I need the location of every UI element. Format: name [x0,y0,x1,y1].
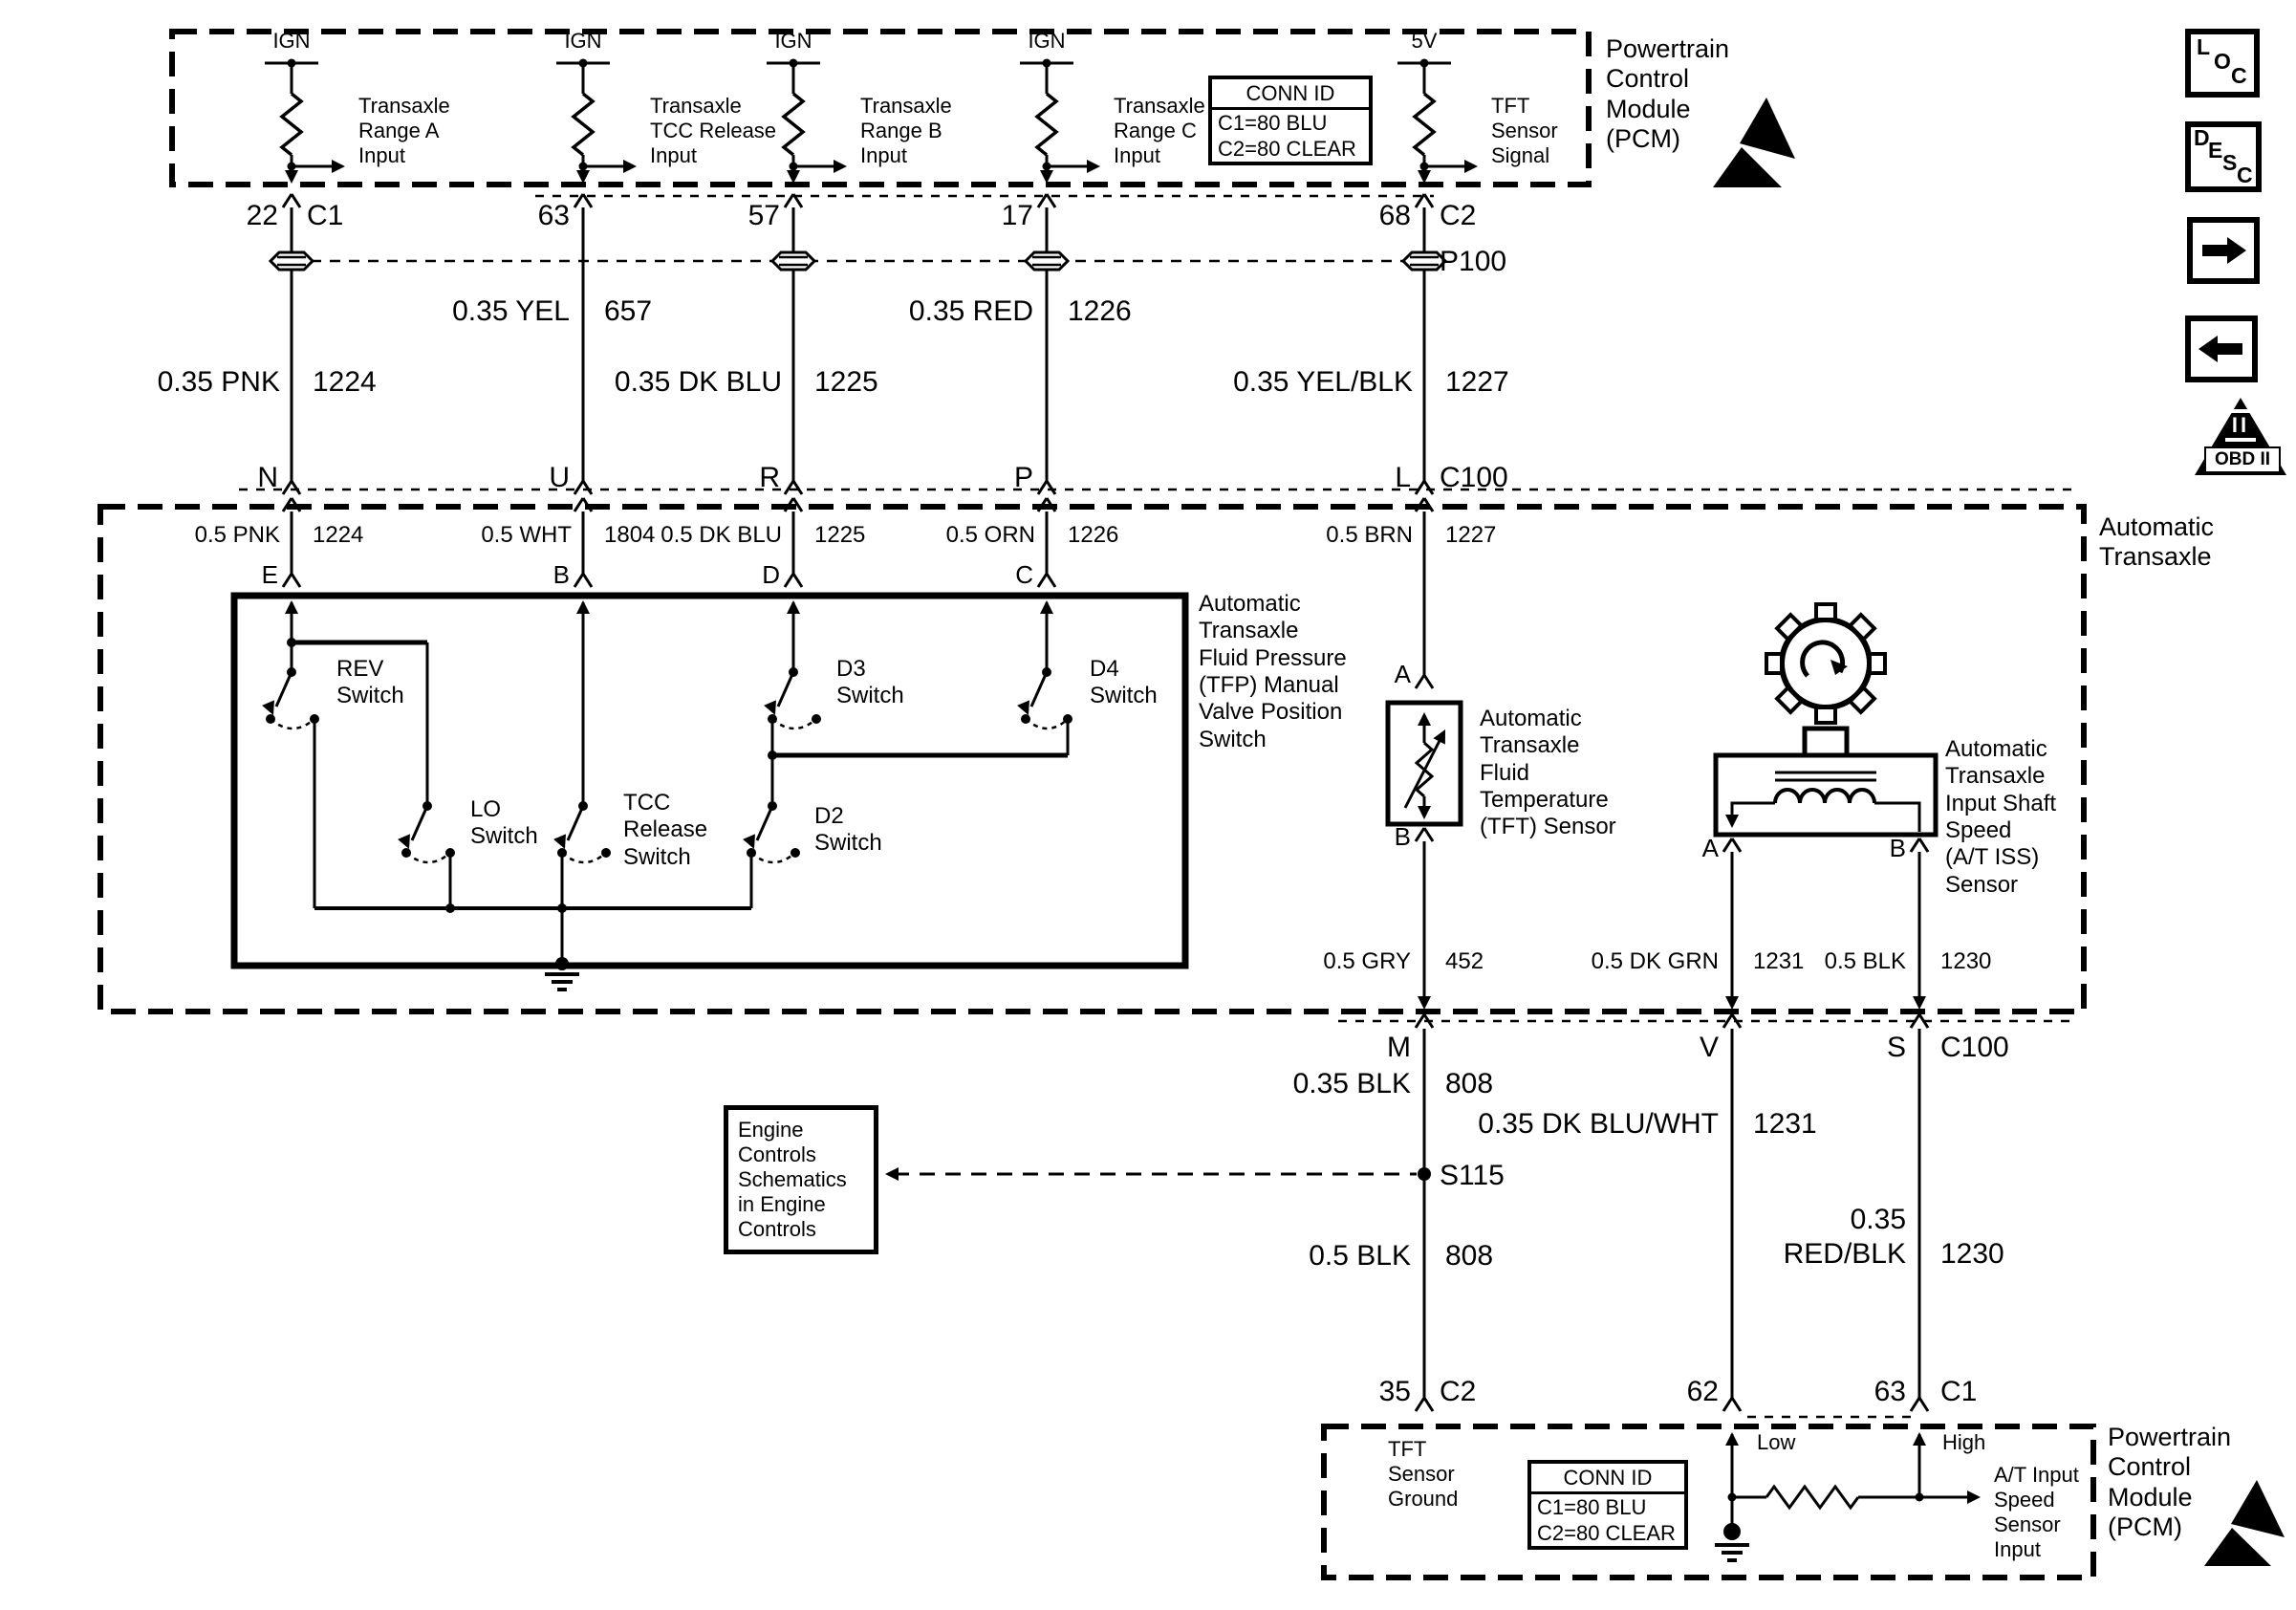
wiring-diagram: IGN IGN IGN IGN 5V Transaxle Range A Inp… [0,0,2296,1610]
tfp-label: Automatic Transaxle Fluid Pressure (TFP)… [1199,591,1347,753]
supply-label-2: IGN [545,29,621,54]
resistor-symbol-tft-signal [1397,63,1468,180]
pin-35-conn: C2 [1440,1375,1476,1409]
tx-wire-color-brn: 0.5 BRN [1241,522,1413,549]
d2-switch-symbol [751,806,795,908]
resistor-symbol-range-a [265,63,336,180]
iss-pin-a: A [1661,834,1719,863]
tfp-ground-symbol [545,957,579,990]
wire-ckt-1231b: 1231 [1753,1107,1817,1142]
wire-ckt-1226: 1226 [1068,294,1132,329]
pin-17: 17 [947,199,1033,233]
resistor-symbol-speed [1766,1487,1858,1508]
d2-switch-label: D2 Switch [814,803,882,858]
transaxle-box [100,507,2084,1012]
circuit-desc-3: Transaxle Range B Input [860,94,952,168]
c100-bottom-name: C100 [1940,1031,2009,1065]
wire-color-red: 0.35 RED [823,294,1033,329]
resistor-symbol-range-b [767,63,837,180]
low-label: Low [1757,1430,1795,1455]
wire-color-redblk: 0.35 RED/BLK [1696,1203,1906,1272]
pin-22-conn: C1 [307,199,343,233]
supply-label-3: IGN [755,29,832,54]
tx-wire-ckt-1224: 1224 [313,522,363,549]
tx-wire-color-dkblu: 0.5 DK BLU [600,522,782,549]
c100-pin-p: P [976,461,1033,495]
circuit-desc-5: TFT Sensor Signal [1491,94,1558,168]
pin-63b: 63 [1820,1375,1906,1409]
iss-sensor-symbol [1716,729,1936,835]
splice-s115-label: S115 [1440,1159,1505,1193]
d4-switch-symbol [1026,672,1068,755]
speed-sensor-input-label: A/T Input Speed Sensor Input [1994,1463,2079,1562]
loc-letter-c: C [2231,63,2247,89]
wire-color-yelblk: 0.35 YEL/BLK [1164,365,1413,400]
tx-wire-ckt-1225: 1225 [814,522,865,549]
tx-wire-color-orn: 0.5 ORN [863,522,1035,549]
prev-page-button[interactable] [2185,315,2258,382]
d3-switch-label: D3 Switch [836,656,904,710]
p100-label: P100 [1440,245,1506,279]
tx-wire-color-pnk: 0.5 PNK [108,522,280,549]
wire-ckt-452: 452 [1445,948,1484,975]
c100-pin-v: V [1661,1031,1719,1065]
tfp-pin-d: D [723,560,780,590]
wire-color-blk: 0.5 BLK [1753,948,1906,975]
engine-controls-ref-text: Engine Controls Schematics in Engine Con… [738,1118,864,1242]
d4-switch-label: D4 Switch [1090,656,1158,710]
loc-button[interactable]: L O C [2185,29,2260,98]
c100-pin-u: U [512,461,570,495]
tcc-switch-label: TCC Release Switch [623,790,707,871]
iss-lead-arrow [1725,815,1739,828]
wire-ckt-808b: 808 [1445,1239,1493,1273]
lo-switch-label: LO Switch [470,796,538,851]
resistor-symbol-range-c [1020,63,1091,180]
transaxle-title: Automatic Transaxle [2099,512,2214,573]
lo-switch-symbol [406,806,450,908]
loc-letter-o: O [2214,49,2231,75]
desc-letter-s: S [2222,150,2237,176]
circuit-desc-2: Transaxle TCC Release Input [650,94,776,168]
pin-22: 22 [192,199,278,233]
pcm-bottom-ground-symbol [1715,1523,1749,1560]
high-label: High [1942,1430,1985,1455]
tfp-pin-b: B [512,560,570,590]
tfp-pin-e: E [221,560,278,590]
tft-sensor-label: Automatic Transaxle Fluid Temperature (T… [1480,706,1616,841]
c100-pin-m: M [1354,1031,1411,1065]
wire-color-dkgrn: 0.5 DK GRN [1527,948,1719,975]
pin-63: 63 [484,199,570,233]
tft-pin-b-glyph [1416,828,1433,841]
pin-63-conn: C1 [1940,1375,1977,1409]
engine-controls-ref-box: Engine Controls Schematics in Engine Con… [724,1105,878,1254]
c100-pin-n: N [221,461,278,495]
tfp-pin-c: C [976,560,1033,590]
wire-color-dkbluwht: 0.35 DK BLU/WHT [1413,1107,1719,1142]
desc-button[interactable]: D E S C [2185,121,2262,192]
resistor-symbol-tcc-release [556,63,627,180]
tft-sensor-arrows [1418,712,1451,819]
conn-id-box-top: CONN ID C1=80 BLU C2=80 CLEAR [1208,76,1373,165]
c100-pin-l: L [1354,461,1411,495]
iss-pin-b: B [1849,834,1906,863]
iss-sensor-label: Automatic Transaxle Input Shaft Speed (A… [1945,736,2056,899]
c100-pin-r: R [723,461,780,495]
pin-62: 62 [1633,1375,1719,1409]
d3-switch-symbol [772,672,816,806]
pin-35: 35 [1325,1375,1411,1409]
conn-id-top-title: CONN ID [1212,79,1369,110]
wire-ckt-1224: 1224 [313,365,377,400]
wire-ckt-1225: 1225 [814,365,878,400]
pcm-bottom-title: Powertrain Control Module (PCM) [2108,1423,2231,1542]
tx-wire-ckt-1226: 1226 [1068,522,1118,549]
pin-68-conn: C2 [1440,199,1476,233]
desc-letter-e: E [2208,138,2222,163]
wire-ckt-1230: 1230 [1940,948,1991,975]
wire-color-dkblu: 0.35 DK BLU [552,365,782,400]
rev-switch-label: REV Switch [336,656,404,710]
tft-pin-a: A [1354,660,1411,689]
supply-label-4: IGN [1008,29,1085,54]
pin-57: 57 [694,199,780,233]
c100-bottom-arrows [1418,996,1926,1010]
wire-color-yel: 0.35 YEL [359,294,570,329]
splice-s115 [885,1167,1431,1181]
gear-icon [1766,604,1885,723]
loc-letter-l: L [2197,34,2210,60]
wire-ckt-1227: 1227 [1445,365,1509,400]
wire-ckt-657: 657 [604,294,652,329]
wire-ckt-808a: 808 [1445,1067,1493,1101]
tx-wire-color-wht: 0.5 WHT [400,522,572,549]
conn-id-top-line1: C1=80 BLU [1212,110,1369,136]
desc-letter-c: C [2237,163,2253,188]
supply-label-5: 5V [1386,29,1462,54]
wire-color-gry: 0.5 GRY [1239,948,1411,975]
c100-pin-s: S [1849,1031,1906,1065]
obd2-label: OBD II [2204,446,2281,473]
circuit-desc-4: Transaxle Range C Input [1114,94,1205,168]
conn-id-bottom-line2: C2=80 CLEAR [1531,1520,1684,1546]
wire-color-blk-035: 0.35 BLK [1201,1067,1411,1101]
tx-wire-ckt-1227: 1227 [1445,522,1496,549]
wire-ckt-1230b: 1230 [1940,1237,2004,1272]
conn-id-bottom-line1: C1=80 BLU [1531,1494,1684,1520]
tft-pin-b: B [1354,822,1411,852]
arrow-left-icon [2191,321,2252,377]
conn-id-top-line2: C2=80 CLEAR [1212,136,1369,162]
wire-color-pnk: 0.35 PNK [70,365,280,400]
circuit-desc-1: Transaxle Range A Input [358,94,450,168]
pin-68: 68 [1325,199,1411,233]
c100-top-name: C100 [1440,461,1508,495]
iss-output-wires [1732,852,1919,1004]
obd2-numerals: II [2225,409,2256,442]
arrow-right-icon [2193,223,2254,278]
conn-id-box-bottom: CONN ID C1=80 BLU C2=80 CLEAR [1527,1460,1688,1550]
wire-color-blk-05: 0.5 BLK [1201,1239,1411,1273]
upper-harness-wires [292,207,1424,482]
next-page-button[interactable] [2187,217,2260,284]
supply-label-1: IGN [253,29,330,54]
tft-sensor-ground-label: TFT Sensor Ground [1388,1437,1458,1512]
rev-switch-symbol [271,672,314,908]
conn-id-bottom-title: CONN ID [1531,1464,1684,1494]
tcc-release-switch-symbol [562,806,606,908]
pcm-top-title: Powertrain Control Module (PCM) [1606,34,1729,154]
